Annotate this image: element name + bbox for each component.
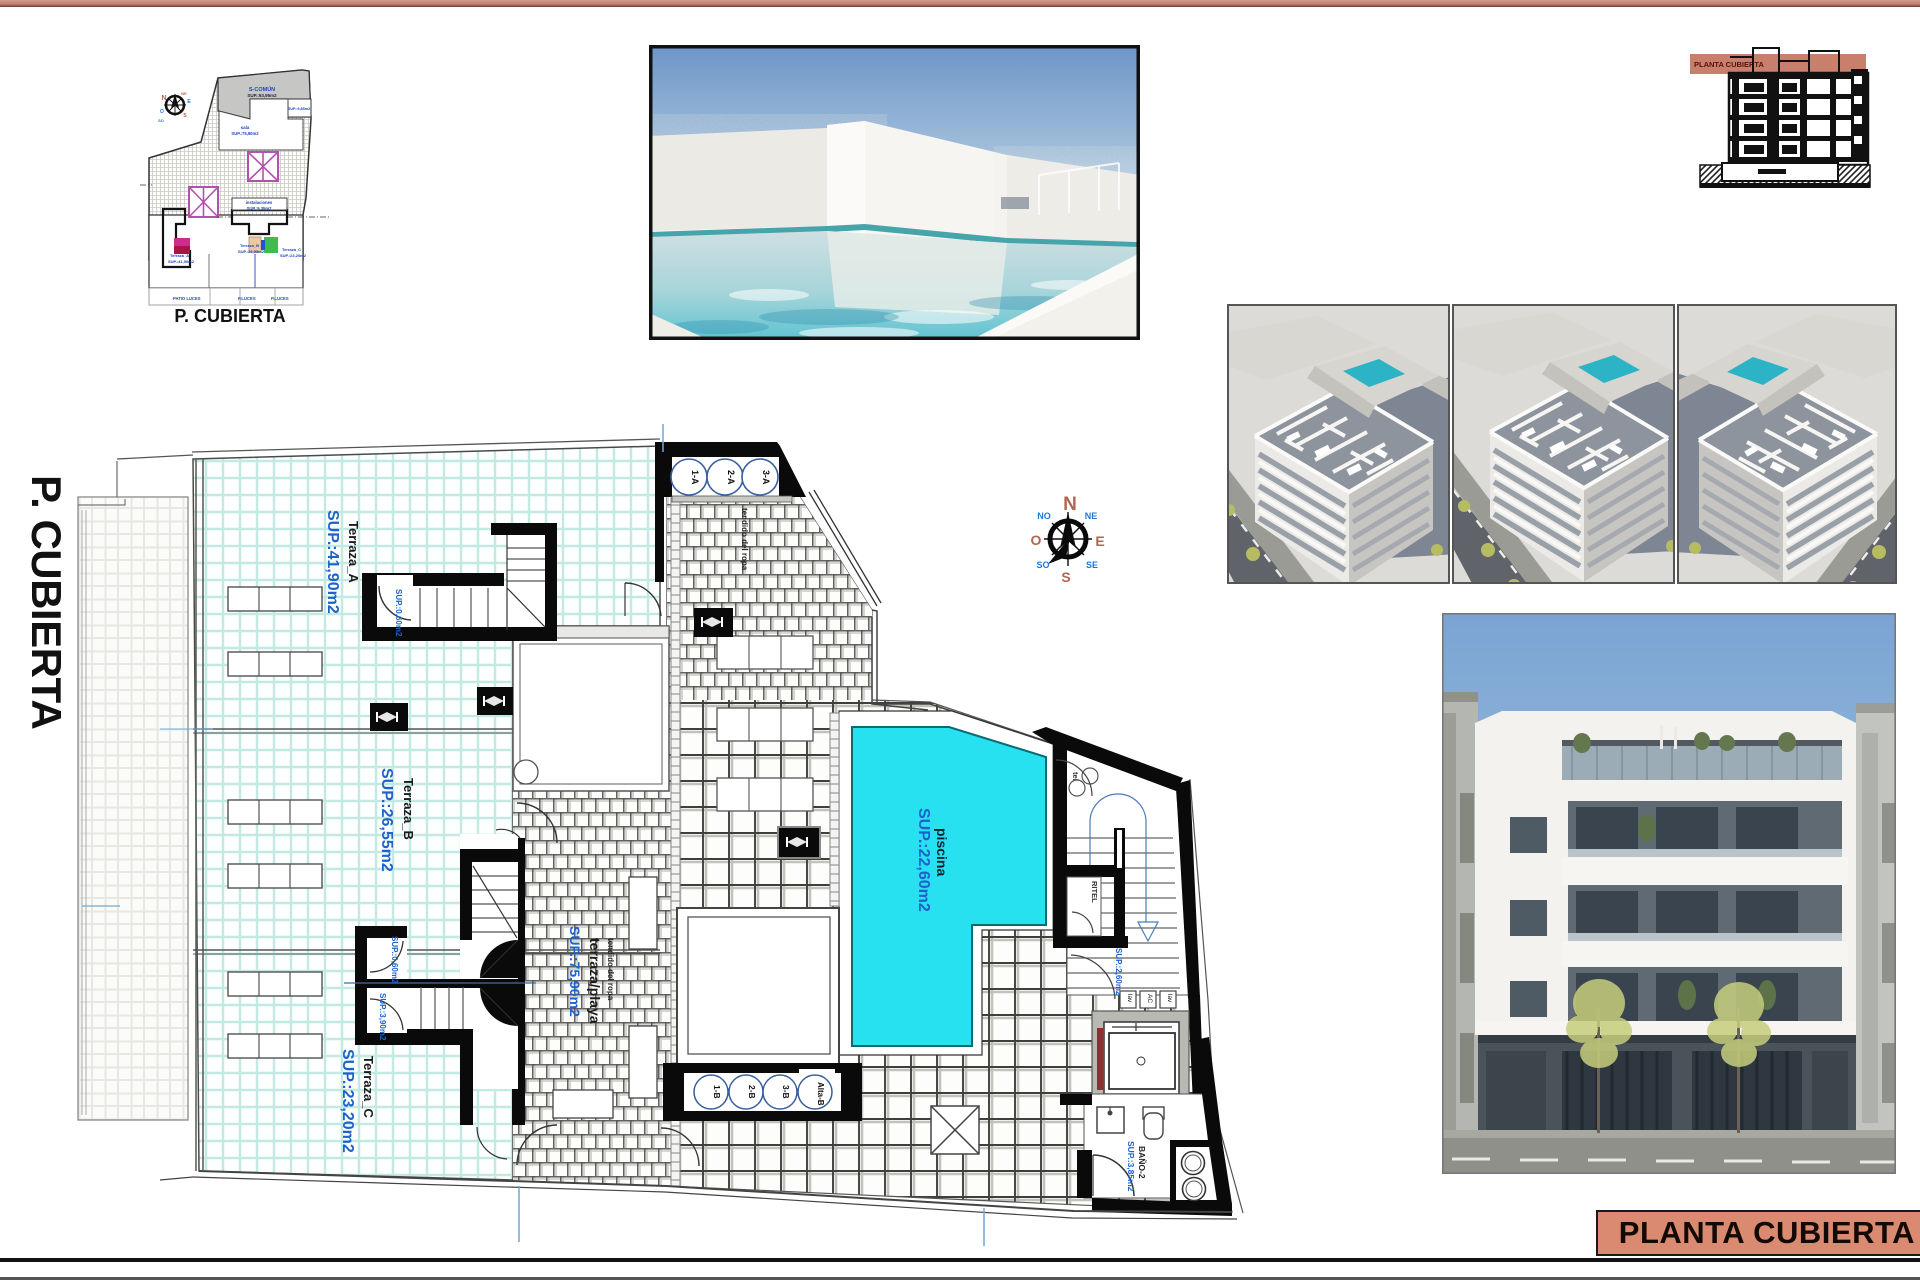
svg-text:tendido del ropa: tendido del ropa (740, 508, 749, 571)
svg-text:Terraza_B: Terraza_B (401, 778, 416, 840)
svg-text:2-B: 2-B (747, 1085, 757, 1099)
svg-text:SUP.:9,35m2: SUP.:9,35m2 (247, 206, 273, 211)
svg-text:SUP.:3,90m2: SUP.:3,90m2 (378, 993, 387, 1041)
svg-text:NE: NE (1085, 511, 1098, 521)
svg-text:O: O (1031, 532, 1042, 548)
svg-text:NE: NE (181, 91, 187, 96)
svg-text:P.LUCES: P.LUCES (271, 296, 289, 301)
svg-text:Terraza_A: Terraza_A (170, 253, 189, 258)
svg-text:tendido del ropa: tendido del ropa (606, 938, 615, 1001)
svg-text:SUP.:0,60m2: SUP.:0,60m2 (394, 589, 403, 637)
svg-text:piscina: piscina (934, 828, 950, 876)
svg-text:E: E (187, 99, 191, 105)
svg-text:3-B: 3-B (781, 1085, 791, 1099)
svg-text:lav: lav (1166, 994, 1173, 1003)
svg-text:1-B: 1-B (712, 1085, 722, 1099)
svg-text:SO: SO (158, 118, 164, 123)
svg-text:PATIO LUCES: PATIO LUCES (173, 296, 201, 301)
svg-text:3-A: 3-A (761, 470, 771, 485)
svg-text:BAÑO-2: BAÑO-2 (1137, 1146, 1147, 1179)
svg-text:AC: AC (1146, 994, 1153, 1003)
svg-text:Terraza_C: Terraza_C (361, 1056, 376, 1119)
svg-text:Terraza_C: Terraza_C (282, 247, 301, 252)
svg-text:SO: SO (1036, 560, 1049, 570)
svg-text:SUP.:23,20m2: SUP.:23,20m2 (339, 1049, 356, 1153)
svg-text:SUP.:3,85m2: SUP.:3,85m2 (1126, 1141, 1136, 1192)
svg-text:SUP.:75,90m2: SUP.:75,90m2 (567, 926, 583, 1017)
svg-text:RITEL: RITEL (1090, 881, 1099, 903)
svg-text:Alta-B: Alta-B (816, 1082, 825, 1106)
svg-text:SUP.:2,60m2: SUP.:2,60m2 (1114, 948, 1123, 996)
svg-text:SUP.:23,20m2: SUP.:23,20m2 (280, 253, 307, 258)
svg-text:SUP.:22,60m2: SUP.:22,60m2 (915, 808, 932, 912)
svg-text:S: S (183, 113, 187, 119)
svg-text:SUP.:93,95m2: SUP.:93,95m2 (247, 93, 277, 98)
svg-text:2-A: 2-A (726, 470, 736, 485)
svg-text:S: S (1061, 569, 1070, 585)
svg-text:P.LUCES: P.LUCES (238, 296, 256, 301)
svg-text:SUP.:0,60m2: SUP.:0,60m2 (390, 936, 399, 984)
svg-text:Terraza_A: Terraza_A (346, 521, 361, 584)
svg-text:sala: sala (241, 125, 250, 130)
svg-text:SUP.:41,90m2: SUP.:41,90m2 (324, 510, 341, 614)
svg-text:NO: NO (1037, 511, 1051, 521)
svg-text:P. CUBIERTA: P. CUBIERTA (23, 475, 70, 729)
svg-text:1-A: 1-A (690, 470, 700, 485)
svg-text:SUP.:26,55m2: SUP.:26,55m2 (378, 768, 395, 872)
svg-text:instalaciones: instalaciones (246, 200, 273, 205)
svg-text:terraza/playa: terraza/playa (587, 938, 603, 1024)
svg-text:SUP.:75,90m2: SUP.:75,90m2 (231, 131, 259, 136)
svg-text:S-COMÚN: S-COMÚN (249, 86, 275, 93)
svg-text:Terraza_B: Terraza_B (240, 243, 259, 248)
svg-text:N: N (1063, 494, 1077, 515)
svg-text:SUP.:9,85m2: SUP.:9,85m2 (288, 107, 311, 111)
svg-text:SE: SE (1086, 560, 1098, 570)
svg-text:SUP.:26,55m2: SUP.:26,55m2 (238, 249, 265, 254)
svg-text:lav: lav (1126, 994, 1133, 1003)
svg-text:N: N (161, 95, 166, 102)
svg-text:O: O (160, 109, 164, 115)
svg-text:E: E (1095, 533, 1104, 549)
svg-text:SUP.:41,90m2: SUP.:41,90m2 (168, 259, 195, 264)
